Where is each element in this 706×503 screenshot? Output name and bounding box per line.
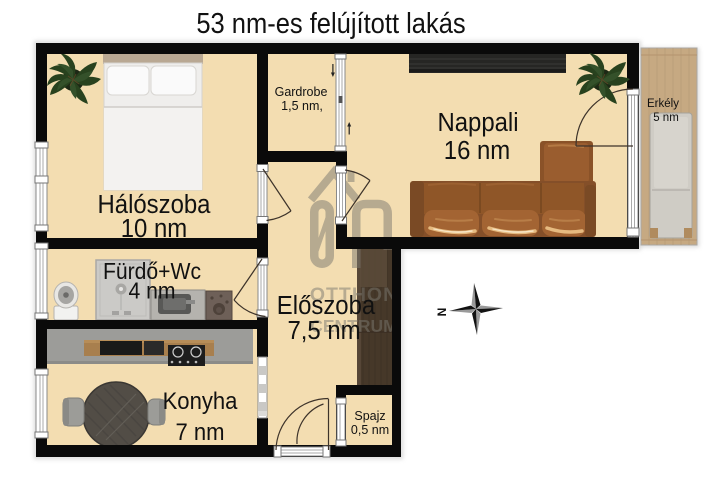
svg-text:Spajz: Spajz [354, 409, 385, 423]
svg-text:0,5 nm: 0,5 nm [351, 423, 389, 437]
svg-text:53 nm-es felújított lakás: 53 nm-es felújított lakás [196, 6, 465, 39]
svg-text:Gardrobe: Gardrobe [275, 85, 328, 99]
svg-text:1,5 nm,: 1,5 nm, [281, 99, 323, 113]
svg-text:N: N [435, 308, 449, 317]
svg-text:7,5 nm: 7,5 nm [287, 316, 360, 345]
svg-text:7 nm: 7 nm [175, 418, 224, 445]
svg-text:Nappali: Nappali [437, 108, 518, 137]
svg-text:16 nm: 16 nm [444, 136, 510, 165]
svg-text:4 nm: 4 nm [128, 278, 175, 304]
svg-text:5 nm: 5 nm [653, 112, 679, 124]
svg-text:Erkély: Erkély [647, 98, 679, 110]
svg-text:Konyha: Konyha [163, 387, 238, 414]
svg-text:10 nm: 10 nm [121, 214, 187, 243]
